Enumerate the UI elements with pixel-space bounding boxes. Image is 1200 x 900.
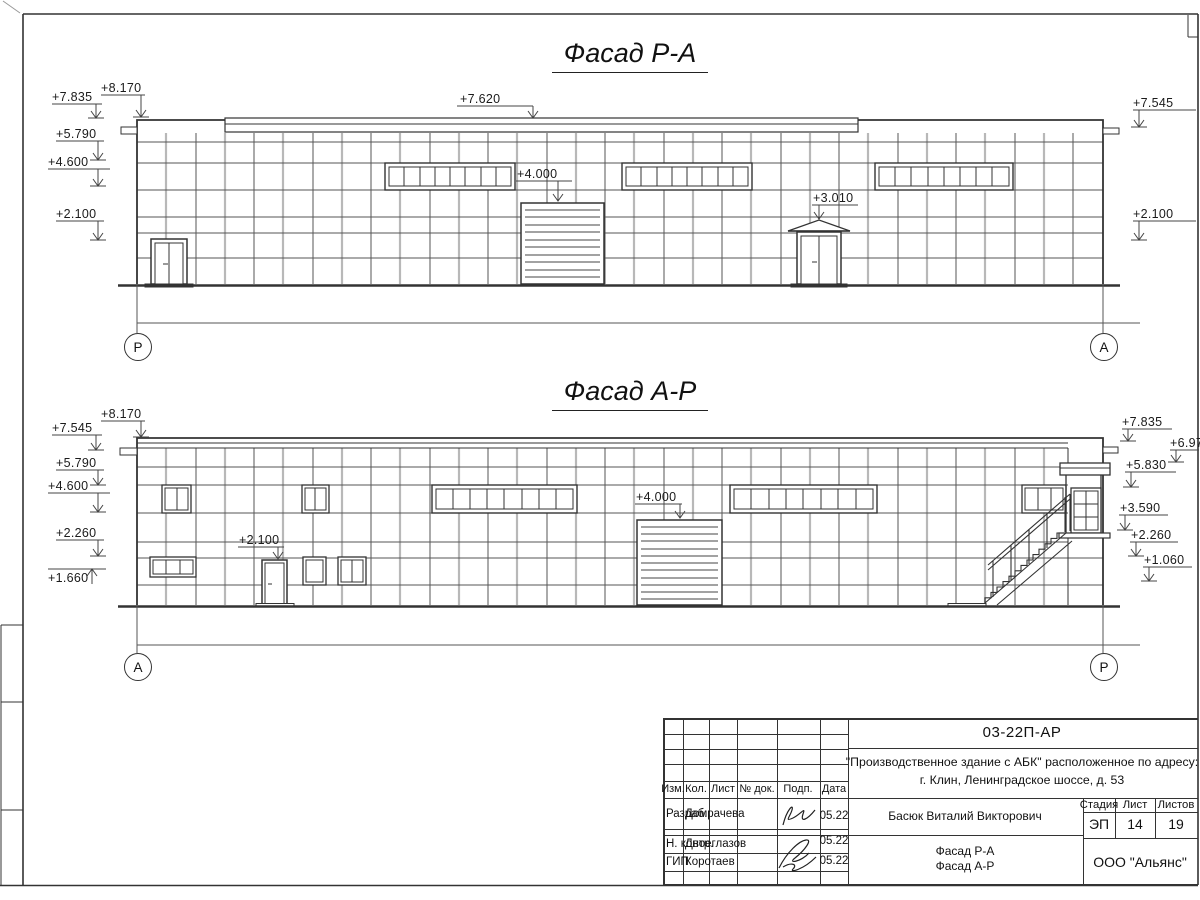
elevation-mark: +2.260 [1131,528,1171,542]
tb-company: ООО "Альянс" [1093,854,1187,870]
tb-sheet-name2: Фасад А-Р [936,859,995,873]
tb-col-izm: Изм. [661,783,685,795]
elevation-mark: +7.835 [1122,415,1162,429]
elevation-mark: +8.170 [101,81,141,95]
tb-project-line1: "Производственное здание с АБК" располож… [846,755,1198,769]
tb-sheet-name1: Фасад Р-А [936,844,995,858]
tb-sheets-label: Листов [1158,799,1195,811]
elevation-mark: +4.000 [517,167,557,181]
tb-role-date: 05.22 [820,810,849,822]
axis-marker-f2-right: Р [1090,653,1118,681]
axis-marker-f1-left: Р [124,333,152,361]
tb-chief-name: Басюк Виталий Викторович [888,809,1041,823]
roller-gate-2 [637,520,722,605]
windows-upper [162,485,1066,513]
elevation-mark: +7.545 [52,421,92,435]
tb-col-data: Дата [822,783,846,795]
entrance-door-left [145,239,193,287]
entrance-door-pediment [788,220,850,287]
tb-role-name: Коротаев [685,856,735,868]
tb-sheet-value: 14 [1127,816,1143,832]
tb-sheet-label: Лист [1123,799,1148,811]
roller-gate [521,203,604,284]
signature [775,836,821,874]
tb-col-podp: Подп. [783,783,812,795]
elevation-mark: +4.600 [48,479,88,493]
elevation-mark: +7.545 [1133,96,1173,110]
tb-col-doc: № док. [739,783,774,795]
facade1-title: Фасад Р-А [505,38,755,73]
facade2-drawing [48,421,1199,653]
drawing-sheet: Фасад Р-А Фасад А-Р Р А А Р +7.835 +8.17… [0,0,1200,900]
signature [779,801,819,829]
tb-stage-label: Стадия [1080,799,1119,811]
windows-lower [150,557,366,585]
tb-role-name: Двоеглазов [685,838,746,850]
elevation-mark: +6.970 [1170,436,1200,450]
elevation-mark: +2.100 [56,207,96,221]
elevation-mark: +4.000 [636,490,676,504]
tb-stage-value: ЭП [1089,816,1109,832]
facade2-title: Фасад А-Р [505,376,755,411]
elevation-mark: +2.100 [239,533,279,547]
tb-role-date: 05.22 [820,835,849,847]
elevation-mark: +3.590 [1120,501,1160,515]
facade1-drawing [48,95,1196,333]
axis-marker-f2-left: А [124,653,152,681]
title-block: Изм. Кол. Лист № док. Подп. Дата Разраб.… [663,718,1198,885]
tb-role-date: 05.22 [820,855,849,867]
elevation-mark: +2.260 [56,526,96,540]
elevation-mark: +5.830 [1126,458,1166,472]
elevation-mark: +3.010 [813,191,853,205]
ribbon-window [385,163,1013,190]
axis-marker-f1-right: А [1090,333,1118,361]
side-door [256,560,294,607]
elevation-mark: +8.170 [101,407,141,421]
elevation-mark: +1.660 [48,571,88,585]
elevation-mark: +1.060 [1144,553,1184,567]
elevation-mark: +4.600 [48,155,88,169]
elevation-mark: +7.620 [460,92,500,106]
tb-role-name: Домрачева [685,808,745,820]
elevation-mark: +5.790 [56,456,96,470]
elevation-mark: +2.100 [1133,207,1173,221]
tb-doc-number: 03-22П-АР [983,724,1062,741]
tb-project-line2: г. Клин, Ленинградское шоссе, д. 53 [920,773,1124,787]
tb-col-kol: Кол. [685,783,707,795]
elevation-mark: +7.835 [52,90,92,104]
tb-col-list: Лист [711,783,735,795]
tb-sheets-value: 19 [1168,816,1184,832]
elevation-mark: +5.790 [56,127,96,141]
